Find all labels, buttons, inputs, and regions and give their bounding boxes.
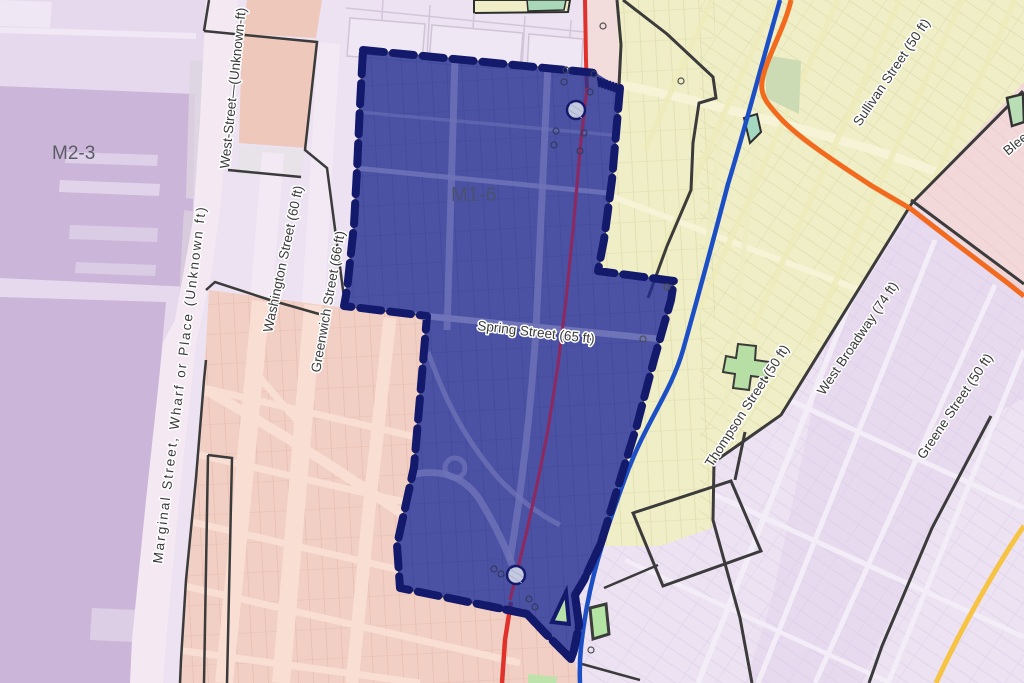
svg-text:M1-6: M1-6 <box>451 184 497 206</box>
svg-text:M2-3: M2-3 <box>52 143 95 164</box>
